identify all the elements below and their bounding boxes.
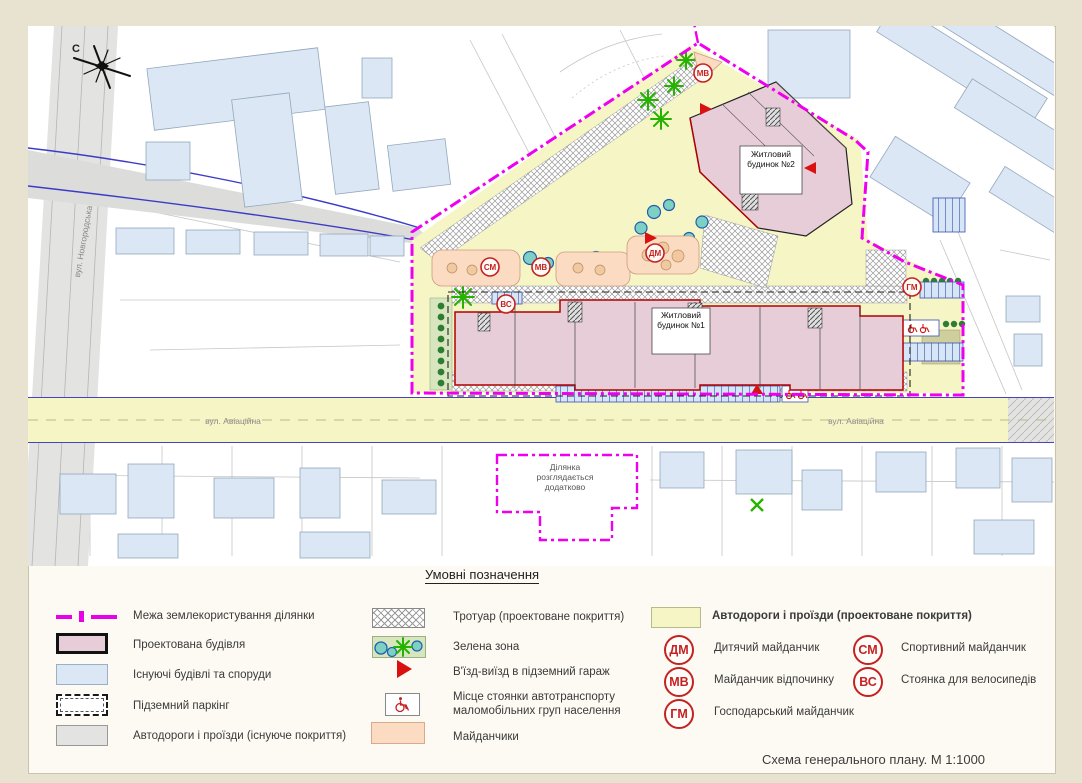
plan-badge: МВ [535, 263, 548, 272]
legend-label: В'їзд-виїзд в підземний гараж [453, 666, 610, 678]
legend-label: Підземний паркінг [133, 700, 230, 712]
legend-playgrounds-swatch [371, 722, 425, 744]
legend-garage-entrance-icon [397, 660, 412, 678]
legend-badge-mv: МВ [664, 667, 694, 697]
legend-badge-vs: ВС [853, 667, 883, 697]
plan-badge: СМ [484, 263, 497, 272]
building-1: Житловий будинок №1 [455, 300, 903, 390]
plan-badge: ДМ [649, 249, 662, 258]
plan-badge: ВС [500, 300, 511, 309]
street-aviatsiina-label-left: вул. Авіаційна [205, 416, 261, 426]
legend-projected-building-swatch [56, 633, 108, 654]
drawing-sheet: вул. Новгородська [0, 0, 1082, 783]
legend-existing-building-swatch [56, 664, 108, 685]
legend-label: Тротуар (проектоване покриття) [453, 611, 624, 623]
legend-label: Господарський майданчик [714, 706, 854, 718]
legend-heading: Умовні позначення [425, 567, 539, 584]
additional-plot-note: Ділянка розглядається додатково [522, 462, 608, 493]
legend-label: Автодороги і проїзди (проектоване покрит… [712, 610, 997, 622]
legend-badge-dm: ДМ [664, 635, 694, 665]
legend-disabled-parking-swatch [385, 693, 420, 716]
plan-badge: ГМ [906, 283, 918, 292]
north-label: С [72, 43, 80, 55]
green-zone-trees [373, 637, 426, 658]
legend-underground-parking-swatch [56, 694, 108, 716]
legend-green-zone-swatch [372, 636, 426, 658]
wheelchair-icon [392, 696, 414, 713]
legend-label: Стоянка для велосипедів [901, 674, 1036, 686]
legend-sidewalk-swatch [372, 608, 425, 628]
legend-badge-sm: СМ [853, 635, 883, 665]
building-1-label: Житловий будинок №1 [653, 311, 709, 331]
legend-label: Спортивний майданчик [901, 642, 1026, 654]
site-plan-map: вул. Новгородська [28, 26, 1054, 566]
legend-label: Проектована будівля [133, 639, 245, 651]
legend-label: Межа землекористування ділянки [133, 610, 315, 622]
legend-label: Майданчик відпочинку [714, 674, 834, 686]
legend-label: Зелена зона [453, 641, 519, 653]
sheet-title: Схема генерального плану. М 1:1000 [762, 752, 985, 767]
legend-projected-road-swatch [651, 607, 701, 628]
legend-badge-gm: ГМ [664, 699, 694, 729]
building-2-label: Житловий будинок №2 [741, 150, 801, 170]
legend-boundary-sample [56, 611, 117, 622]
legend-label: Існуючі будівлі та споруди [133, 669, 271, 681]
legend-label: Місце стоянки автотранспорту маломобільн… [453, 690, 688, 719]
legend-label: Майданчики [453, 731, 519, 743]
street-aviatsiina-label-right: вул. Авіаційна [828, 416, 884, 426]
plan-badge: МВ [697, 69, 710, 78]
legend-label: Автодороги і проїзди (існуюче покриття) [133, 730, 346, 742]
legend-label: Дитячий майданчик [714, 642, 819, 654]
legend-existing-road-swatch [56, 725, 108, 746]
